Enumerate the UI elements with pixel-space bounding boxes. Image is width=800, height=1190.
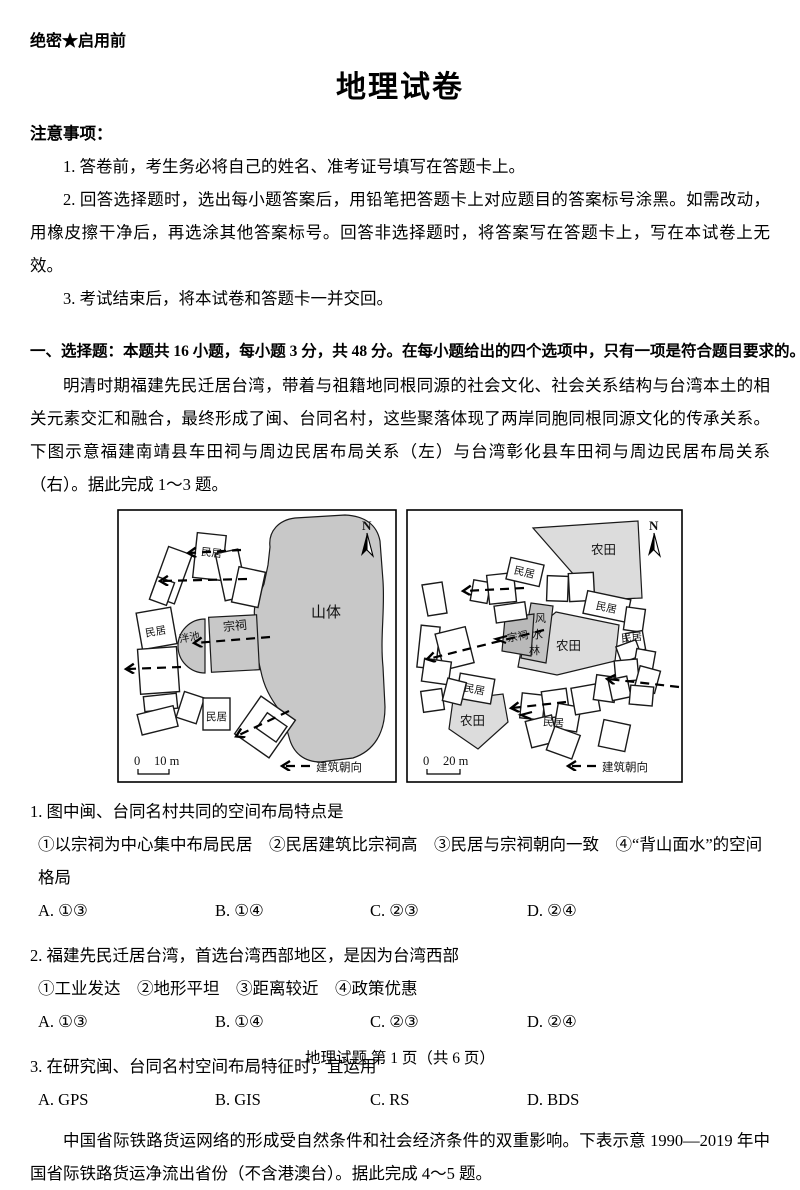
question-stem: 1. 图中闽、台同名村共同的空间布局特点是 (30, 795, 770, 828)
question-options: A. ①③ B. ①④ C. ②③ D. ②④ (30, 1005, 770, 1038)
question-options: A. ①③ B. ①④ C. ②③ D. ②④ (30, 894, 770, 927)
option-d: D. ②④ (527, 1005, 770, 1038)
question-suboptions: ①工业发达 ②地形平坦 ③距离较近 ④政策优惠 (30, 972, 770, 1005)
notice-heading: 注意事项： (30, 120, 800, 144)
fengshui-label: 风 (535, 612, 546, 625)
hall-label: 宗祠 (222, 617, 247, 634)
question-1: 1. 图中闽、台同名村共同的空间布局特点是 ①以宗祠为中心集中布局民居 ②民居建… (0, 795, 800, 927)
page-footer: 地理试题 第 1 页（共 6 页） (0, 1046, 800, 1068)
question-stem: 2. 福建先民迁居台湾，首选台湾西部地区，是因为台湾西部 (30, 939, 770, 972)
building (138, 647, 180, 695)
notice-item-1: 1. 答卷前，考生务必将自己的姓名、准考证号填写在答题卡上。 (30, 150, 770, 183)
option-b: B. ①④ (215, 1005, 370, 1038)
north-label: N (362, 518, 372, 533)
farmland-label: 农田 (591, 543, 616, 557)
page-title: 地理试卷 (0, 0, 800, 106)
scale-length: 10 m (154, 754, 180, 768)
secrecy-label: 绝密★启用前 (30, 27, 126, 51)
building (623, 607, 645, 632)
option-a: A. ①③ (38, 894, 215, 927)
building (598, 720, 630, 752)
residence-label: 民居 (543, 716, 565, 729)
left-map-fujian: 山体 宗祠 泮池 民居 民居 (117, 509, 397, 783)
legend-label: 建筑朝向 (316, 760, 362, 774)
right-map-taiwan: 农田 农田 农田 风 水 林 宗祠 (406, 509, 683, 783)
notice-item-2: 2. 回答选择题时，选出每小题答案后，用铅笔把答题卡上对应题目的答案标号涂黑。如… (30, 183, 770, 282)
north-label: N (649, 518, 659, 533)
building (494, 602, 527, 623)
fengshui-label: 林 (529, 643, 540, 657)
building (629, 685, 654, 706)
question-2: 2. 福建先民迁居台湾，首选台湾西部地区，是因为台湾西部 ①工业发达 ②地形平坦… (0, 939, 800, 1038)
residence-label: 民居 (621, 631, 643, 645)
building (421, 689, 445, 713)
mountain-label: 山体 (311, 604, 341, 621)
residence-label: 民居 (200, 546, 222, 560)
option-d: D. ②④ (527, 894, 770, 927)
residence-label: 民居 (206, 711, 227, 723)
village-layout-figure: 山体 宗祠 泮池 民居 民居 (117, 509, 683, 783)
option-c: C. ②③ (370, 1005, 527, 1038)
scale-zero: 0 (423, 754, 429, 768)
section-heading: 一、选择题：本题共 16 小题，每小题 3 分，共 48 分。在每小题给出的四个… (30, 339, 800, 361)
exam-page: 绝密★启用前 地理试卷 注意事项： 1. 答卷前，考生务必将自己的姓名、准考证号… (0, 0, 800, 1100)
building (547, 576, 569, 602)
passage-1: 明清时期福建先民迁居台湾，带着与祖籍地同根同源的社会文化、社会关系结构与台湾本土… (30, 369, 770, 501)
farmland-label: 农田 (556, 639, 581, 653)
option-a: A. ①③ (38, 1005, 215, 1038)
option-c: C. ②③ (370, 894, 527, 927)
passage-2: 中国省际铁路货运网络的形成受自然条件和社会经济条件的双重影响。下表示意 1990… (30, 1124, 770, 1190)
scale-zero: 0 (134, 754, 140, 768)
notice-item-3: 3. 考试结束后，将本试卷和答题卡一并交回。 (30, 282, 770, 315)
option-b: B. ①④ (215, 894, 370, 927)
scale-length: 20 m (443, 754, 469, 768)
legend-label: 建筑朝向 (602, 760, 648, 774)
question-suboptions: ①以宗祠为中心集中布局民居 ②民居建筑比宗祠高 ③民居与宗祠朝向一致 ④“背山面… (30, 828, 770, 894)
farmland-label: 农田 (460, 714, 485, 728)
